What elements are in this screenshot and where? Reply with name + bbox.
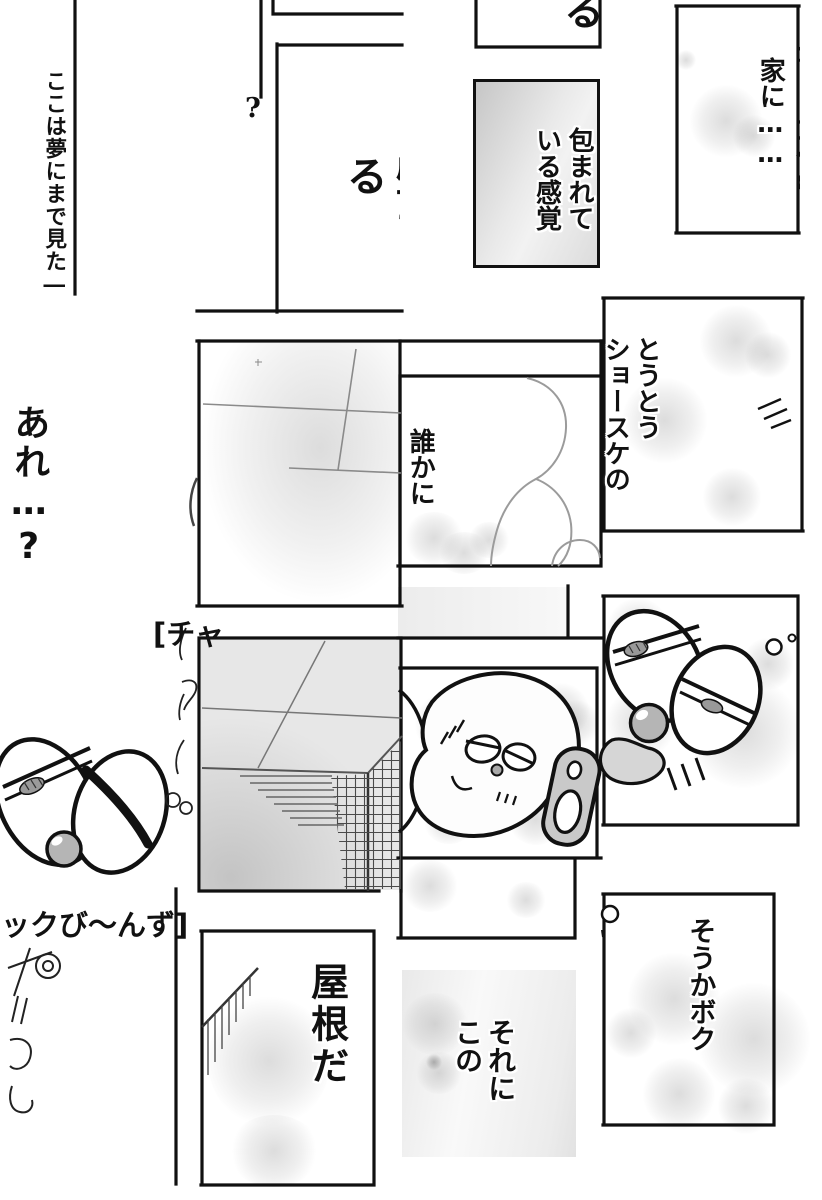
caption-dream: ここは夢にまで見た― bbox=[41, 70, 67, 299]
clipped-column: ショースケの bbox=[789, 38, 800, 228]
series-title-bottom: ックび〜んず] bbox=[1, 902, 188, 944]
speech-house: 家に…… bbox=[754, 57, 785, 169]
series-title-top: [チャ bbox=[153, 611, 224, 653]
speech-ru: る bbox=[556, 0, 604, 30]
roof-corner-drawing bbox=[202, 641, 402, 891]
handwritten-doodles bbox=[8, 948, 60, 1112]
motion-lines-icon bbox=[758, 399, 791, 428]
floor-lines-drawing bbox=[203, 349, 401, 473]
speech-souka: そうかボク bbox=[683, 917, 715, 1052]
speech-are: あれ…? bbox=[7, 404, 50, 570]
speech-wrapped-feeling: 包まれて いる感覚 bbox=[530, 127, 595, 231]
speech-wall: 壁もある bbox=[338, 155, 400, 313]
face-closeup-drawing bbox=[588, 594, 796, 790]
speech-dareka: 誰かに bbox=[404, 428, 435, 506]
sleeping-bean-drawing bbox=[399, 673, 603, 848]
silhouette-drawing bbox=[491, 378, 600, 566]
manga-page: ここは夢にまで見た― ? 壁もある る 包まれて いる感覚 家に…… ショースケ… bbox=[0, 0, 822, 1200]
speech-toutou: とうとう ショースケの bbox=[599, 336, 661, 492]
speech-roof: 屋根だ bbox=[303, 962, 349, 1088]
speech-wall-clip: 壁もある bbox=[338, 155, 400, 313]
sleep-bubble-icon bbox=[767, 635, 796, 655]
speech-soreni: それに この bbox=[451, 1018, 517, 1102]
clipped-column-text: ショースケの bbox=[789, 38, 800, 194]
roof-edge-drawing bbox=[202, 968, 258, 1075]
sleepy-eyes-drawing bbox=[0, 723, 182, 885]
question-mark: ? bbox=[245, 93, 261, 124]
